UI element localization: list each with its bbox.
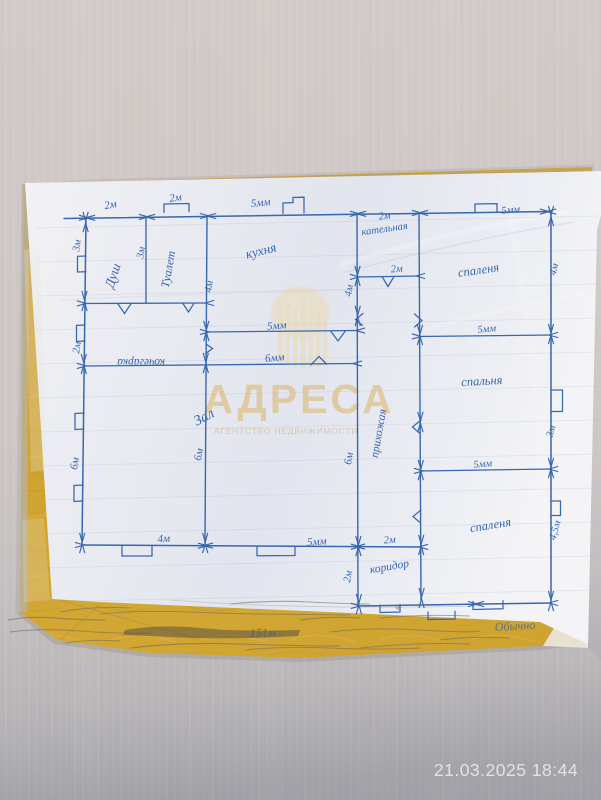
svg-text:2м: 2м [378, 210, 391, 222]
svg-text:3м: 3м [71, 238, 84, 253]
svg-text:4м: 4м [343, 283, 356, 297]
svg-text:2м: 2м [103, 198, 117, 212]
svg-text:3м: 3м [135, 245, 148, 260]
svg-text:6м: 6м [342, 451, 356, 465]
svg-text:151м: 151м [250, 625, 276, 640]
svg-text:2м: 2м [383, 534, 396, 546]
svg-text:4м: 4м [157, 533, 170, 546]
svg-text:5мм: 5мм [477, 323, 497, 336]
svg-text:спальня: спальня [461, 373, 503, 389]
svg-text:5мм: 5мм [307, 535, 327, 548]
svg-text:5мм: 5мм [266, 319, 287, 333]
svg-text:5мм: 5мм [501, 204, 521, 217]
svg-text:2м: 2м [71, 340, 84, 354]
svg-text:АГЕНТСТВО НЕДВИЖИМОСТИ: АГЕНТСТВО НЕДВИЖИМОСТИ [214, 426, 358, 436]
svg-text:6мм: 6мм [264, 351, 285, 365]
svg-text:кочегарка: кочегарка [117, 356, 165, 368]
svg-text:ч.: ч. [395, 602, 402, 612]
svg-text:2м: 2м [169, 191, 183, 205]
svg-text:2м: 2м [342, 569, 355, 583]
svg-text:2м: 2м [390, 263, 403, 275]
svg-text:Обычно: Обычно [494, 618, 535, 634]
svg-text:5мм: 5мм [473, 458, 493, 471]
svg-text:6м: 6м [68, 456, 82, 470]
svg-text:21.03.2025 18:44: 21.03.2025 18:44 [434, 760, 578, 780]
svg-text:4м: 4м [203, 279, 216, 293]
svg-text:АДРЕСА: АДРЕСА [203, 376, 394, 422]
svg-text:6м: 6м [192, 447, 206, 461]
svg-text:5мм: 5мм [250, 196, 271, 210]
